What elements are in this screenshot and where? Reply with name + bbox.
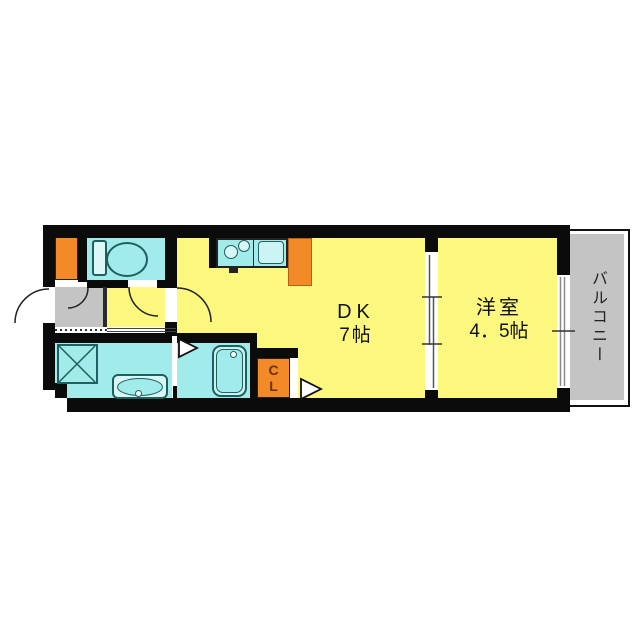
stove-burner-icon (224, 245, 238, 259)
wall-toilet-bottom-left (87, 280, 128, 288)
sliding-door-icon (430, 255, 434, 388)
toilet-bowl-icon (106, 242, 148, 277)
refrigerator-space (288, 238, 312, 286)
kitchen-counter-divider (253, 239, 254, 267)
western-room-size: 4．5帖 (443, 320, 555, 343)
balcony-label: バルコニー (570, 234, 624, 400)
wall-right-lower (557, 388, 570, 412)
hallway-floor (107, 287, 165, 327)
shoe-cabinet-front (55, 280, 78, 287)
kitchen-sink-icon (258, 241, 284, 264)
faucet-icon (229, 268, 238, 273)
bathtub-faucet-icon (230, 351, 237, 358)
closet-label: C L (258, 359, 289, 397)
dk-room-size: 7帖 (316, 324, 396, 347)
western-room-label: 洋室 4．5帖 (443, 297, 555, 343)
floorplan-canvas: バルコニー C L (0, 0, 640, 640)
wall-bottom (67, 398, 570, 412)
wall-genkan-hall-divider (103, 287, 107, 327)
closet-door-leaf (290, 358, 298, 398)
wall-toilet-right (165, 238, 177, 288)
window-icon (561, 277, 565, 386)
wall-mid-horizontal (43, 333, 257, 343)
genkan-entry-floor (55, 287, 103, 327)
wall-dk-western-stub-bottom (425, 390, 438, 398)
dk-room-floor-lower (298, 348, 425, 398)
closet: C L (257, 358, 290, 398)
washing-machine-pan-icon (57, 344, 98, 384)
western-room-name: 洋室 (443, 297, 555, 320)
wall-left-step (55, 383, 67, 398)
bathroom-door-leaf (172, 336, 177, 386)
balcony-area: バルコニー (570, 234, 624, 400)
shoe-cabinet (55, 236, 78, 280)
vanity-drain-icon (135, 390, 142, 397)
wall-left-upper (43, 225, 55, 287)
wall-shoebox-toilet (78, 236, 87, 282)
wall-kitchen-stub (209, 238, 216, 268)
wall-right-upper (557, 225, 570, 275)
entry-door-swing-icon (15, 289, 49, 323)
wall-top (43, 225, 570, 238)
toilet-tank-icon (92, 240, 107, 276)
wall-dk-western-stub-top (425, 238, 438, 252)
wall-bathdoor-stub (173, 386, 177, 398)
stove-burner-icon (238, 240, 250, 252)
dk-room-name: DK (316, 301, 396, 324)
wall-closet-top (250, 348, 298, 358)
dk-room-label: DK 7帖 (316, 301, 396, 347)
